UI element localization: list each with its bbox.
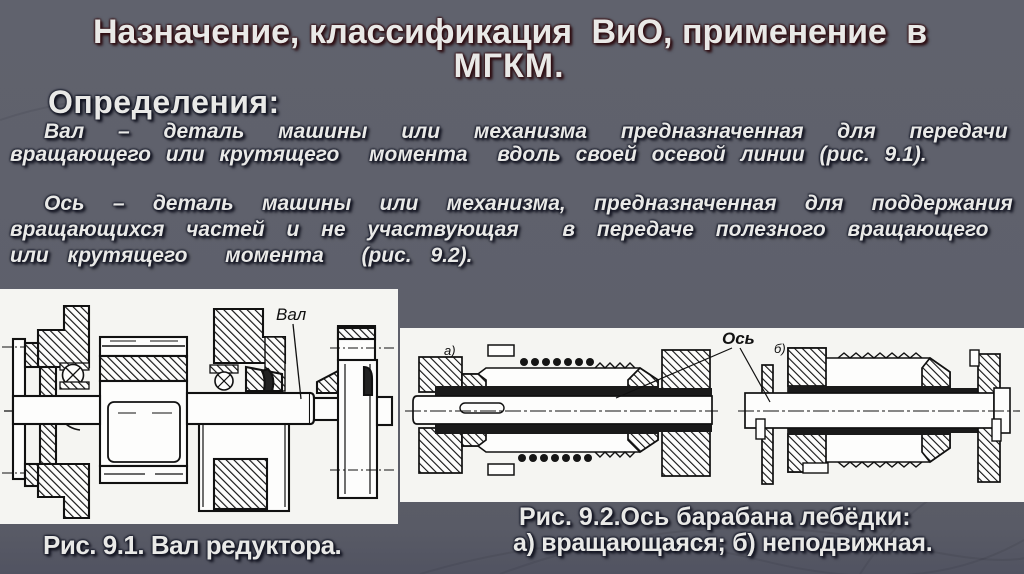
svg-text:а): а) [444,343,456,358]
svg-text:Ось: Ось [722,329,755,348]
svg-text:б): б) [774,341,786,356]
svg-text:Вал: Вал [276,305,307,324]
